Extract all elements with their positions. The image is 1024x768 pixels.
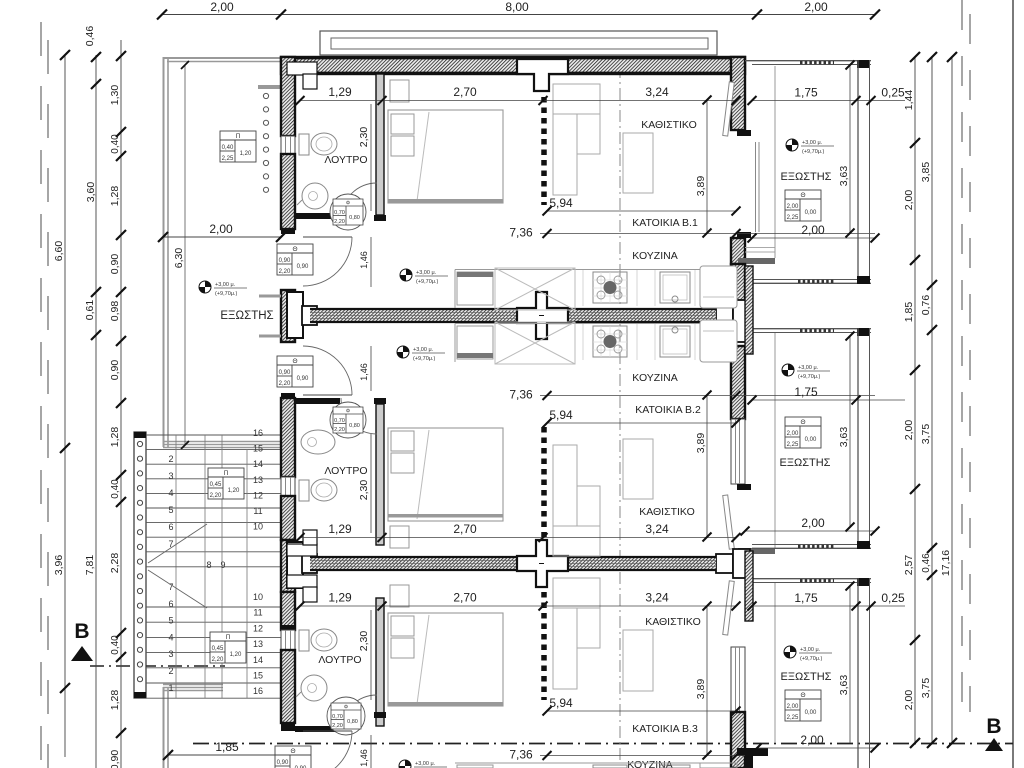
- svg-text:2,70: 2,70: [453, 591, 477, 605]
- svg-text:+3,00 μ.: +3,00 μ.: [416, 270, 437, 276]
- svg-text:5,94: 5,94: [549, 408, 573, 422]
- svg-text:1,30: 1,30: [109, 85, 121, 106]
- svg-text:0,70: 0,70: [332, 714, 343, 720]
- svg-text:3: 3: [168, 649, 173, 659]
- svg-text:B: B: [986, 715, 1001, 738]
- svg-text:3: 3: [168, 471, 173, 481]
- svg-text:1,85: 1,85: [215, 740, 239, 754]
- svg-text:ΛΟΥΤΡΟ: ΛΟΥΤΡΟ: [324, 465, 367, 477]
- svg-text:1,44: 1,44: [903, 90, 915, 111]
- svg-text:3,75: 3,75: [920, 678, 932, 699]
- svg-text:ΕΞΩΣΤΗΣ: ΕΞΩΣΤΗΣ: [780, 457, 831, 469]
- svg-text:2,00: 2,00: [210, 0, 234, 14]
- svg-text:1,46: 1,46: [359, 363, 369, 381]
- svg-text:0,90: 0,90: [279, 370, 291, 376]
- svg-text:9: 9: [220, 560, 225, 570]
- svg-text:17,16: 17,16: [940, 550, 952, 576]
- svg-text:2: 2: [168, 454, 173, 464]
- svg-text:1,85: 1,85: [903, 302, 915, 323]
- svg-text:1: 1: [168, 683, 173, 693]
- svg-text:0,90: 0,90: [297, 264, 309, 270]
- svg-text:ΛΟΥΤΡΟ: ΛΟΥΤΡΟ: [324, 154, 367, 166]
- svg-text:ΚΟΥΖΙΝΑ: ΚΟΥΖΙΝΑ: [632, 250, 677, 262]
- svg-text:1,20: 1,20: [230, 652, 242, 658]
- svg-text:ΕΞΩΣΤΗΣ: ΕΞΩΣΤΗΣ: [781, 671, 832, 683]
- svg-text:3,60: 3,60: [85, 182, 97, 203]
- svg-text:Θ: Θ: [292, 246, 297, 253]
- svg-text:16: 16: [253, 428, 263, 438]
- svg-text:0,80: 0,80: [349, 215, 360, 221]
- svg-text:2,30: 2,30: [358, 127, 370, 148]
- svg-text:4: 4: [168, 488, 173, 498]
- svg-text:2,57: 2,57: [903, 555, 915, 576]
- svg-text:+3,00 μ.: +3,00 μ.: [415, 761, 436, 767]
- svg-text:3,85: 3,85: [920, 162, 932, 183]
- svg-text:0,25: 0,25: [881, 591, 905, 605]
- svg-text:0,80: 0,80: [349, 423, 360, 429]
- svg-text:0,90: 0,90: [297, 376, 309, 382]
- svg-text:ΚΑΘΙΣΤΙΚΟ: ΚΑΘΙΣΤΙΚΟ: [641, 119, 697, 131]
- svg-text:8: 8: [206, 560, 211, 570]
- svg-text:5: 5: [168, 505, 173, 515]
- svg-text:2,20: 2,20: [212, 657, 224, 663]
- svg-text:ΚΑΤΟΙΚΙΑ Β.3: ΚΑΤΟΙΚΙΑ Β.3: [632, 723, 698, 735]
- svg-text:ΚΑΤΟΙΚΙΑ Β.1: ΚΑΤΟΙΚΙΑ Β.1: [632, 217, 698, 229]
- svg-text:ΕΞΩΣΤΗΣ: ΕΞΩΣΤΗΣ: [220, 310, 273, 322]
- svg-text:2,30: 2,30: [358, 480, 370, 501]
- svg-text:Θ: Θ: [800, 192, 805, 199]
- svg-text:2,70: 2,70: [453, 522, 477, 536]
- svg-text:0,90: 0,90: [279, 258, 291, 264]
- svg-text:2,00: 2,00: [801, 516, 825, 530]
- svg-text:5: 5: [168, 616, 173, 626]
- svg-text:1,29: 1,29: [328, 522, 352, 536]
- svg-text:0,00: 0,00: [805, 710, 817, 716]
- svg-text:Θ: Θ: [800, 692, 805, 699]
- svg-text:2,00: 2,00: [804, 0, 828, 14]
- svg-text:2,70: 2,70: [453, 85, 477, 99]
- svg-text:2,00: 2,00: [787, 431, 799, 437]
- svg-text:2,00: 2,00: [787, 704, 799, 710]
- svg-text:3,24: 3,24: [645, 85, 669, 99]
- svg-text:4: 4: [168, 632, 173, 642]
- svg-text:3,24: 3,24: [645, 522, 669, 536]
- svg-text:Π: Π: [226, 634, 231, 641]
- svg-text:ΚΑΘΙΣΤΙΚΟ: ΚΑΘΙΣΤΙΚΟ: [645, 616, 701, 628]
- svg-text:0,70: 0,70: [334, 210, 345, 216]
- svg-text:3,63: 3,63: [838, 427, 850, 448]
- svg-text:ΚΟΥΖΙΝΑ: ΚΟΥΖΙΝΑ: [632, 372, 677, 384]
- svg-text:(+9,70μ.): (+9,70μ.): [798, 374, 820, 380]
- svg-text:0,45: 0,45: [210, 482, 222, 488]
- svg-text:2,20: 2,20: [334, 219, 345, 225]
- svg-text:0,00: 0,00: [805, 210, 817, 216]
- svg-text:2,30: 2,30: [358, 631, 370, 652]
- svg-text:5,94: 5,94: [549, 196, 573, 210]
- svg-text:0,25: 0,25: [881, 86, 905, 100]
- svg-text:3,63: 3,63: [838, 675, 850, 696]
- svg-text:7,81: 7,81: [84, 555, 96, 576]
- svg-text:0,00: 0,00: [805, 437, 817, 443]
- svg-text:2,00: 2,00: [903, 190, 915, 211]
- svg-text:13: 13: [253, 475, 263, 485]
- svg-text:12: 12: [253, 623, 263, 633]
- svg-text:2,25: 2,25: [787, 215, 799, 221]
- svg-text:10: 10: [253, 522, 263, 532]
- svg-text:ΕΞΩΣΤΗΣ: ΕΞΩΣΤΗΣ: [781, 171, 832, 183]
- svg-text:8,00: 8,00: [505, 0, 529, 14]
- svg-text:Φ: Φ: [346, 409, 350, 415]
- svg-text:13: 13: [253, 639, 263, 649]
- svg-text:1,28: 1,28: [109, 186, 121, 207]
- svg-text:1,75: 1,75: [794, 86, 818, 100]
- svg-text:1,46: 1,46: [359, 251, 369, 269]
- svg-text:ΚΑΘΙΣΤΙΚΟ: ΚΑΘΙΣΤΙΚΟ: [639, 506, 695, 518]
- svg-text:0,98: 0,98: [109, 301, 121, 322]
- svg-text:3,89: 3,89: [695, 433, 707, 454]
- svg-text:+3,00 μ.: +3,00 μ.: [413, 347, 434, 353]
- svg-text:B: B: [74, 620, 89, 643]
- svg-text:2,20: 2,20: [332, 723, 343, 729]
- svg-text:0,45: 0,45: [212, 646, 224, 652]
- svg-text:3,24: 3,24: [645, 591, 669, 605]
- svg-text:2,00: 2,00: [801, 223, 825, 237]
- svg-text:3,75: 3,75: [920, 424, 932, 445]
- svg-text:7,36: 7,36: [509, 226, 533, 240]
- svg-text:+3,00 μ.: +3,00 μ.: [800, 647, 821, 653]
- svg-text:(+9,70μ.): (+9,70μ.): [802, 149, 824, 155]
- svg-text:0,76: 0,76: [920, 295, 932, 316]
- svg-text:1,20: 1,20: [228, 488, 240, 494]
- svg-text:0,61: 0,61: [84, 300, 96, 321]
- svg-text:3,63: 3,63: [838, 166, 850, 187]
- svg-text:Θ: Θ: [290, 748, 295, 755]
- svg-text:0,46: 0,46: [84, 26, 96, 47]
- svg-text:1,28: 1,28: [109, 427, 121, 448]
- svg-text:10: 10: [253, 592, 263, 602]
- svg-text:16: 16: [253, 686, 263, 696]
- svg-text:6: 6: [168, 522, 173, 532]
- svg-text:2,00: 2,00: [209, 222, 233, 236]
- svg-text:0,70: 0,70: [334, 418, 345, 424]
- svg-text:11: 11: [253, 506, 262, 516]
- svg-text:12: 12: [253, 490, 263, 500]
- svg-text:2,25: 2,25: [222, 156, 234, 162]
- svg-text:2,25: 2,25: [787, 442, 799, 448]
- svg-text:(+9,70μ.): (+9,70μ.): [215, 291, 237, 297]
- svg-text:0,40: 0,40: [110, 479, 121, 499]
- svg-text:15: 15: [253, 444, 263, 454]
- svg-text:2,00: 2,00: [787, 204, 799, 210]
- svg-text:6,60: 6,60: [53, 241, 65, 262]
- svg-text:Φ: Φ: [346, 201, 350, 207]
- svg-text:6,30: 6,30: [173, 248, 185, 269]
- svg-text:1,28: 1,28: [109, 690, 121, 711]
- svg-text:1,75: 1,75: [794, 591, 818, 605]
- svg-text:2,20: 2,20: [334, 427, 345, 433]
- svg-text:0,46: 0,46: [921, 553, 932, 573]
- svg-text:14: 14: [253, 655, 263, 665]
- svg-text:Φ: Φ: [344, 705, 348, 711]
- svg-text:3,89: 3,89: [695, 679, 707, 700]
- svg-text:2,00: 2,00: [800, 733, 824, 747]
- svg-text:(+9,70μ.): (+9,70μ.): [413, 356, 435, 362]
- svg-text:5,94: 5,94: [549, 696, 573, 710]
- svg-text:0,90: 0,90: [109, 360, 121, 381]
- svg-text:2,00: 2,00: [903, 690, 915, 711]
- svg-text:1,20: 1,20: [240, 151, 252, 157]
- svg-text:3,89: 3,89: [695, 176, 707, 197]
- svg-text:2: 2: [168, 666, 173, 676]
- svg-text:Π: Π: [224, 470, 229, 477]
- svg-text:0,90: 0,90: [109, 750, 121, 768]
- svg-text:(+9,70μ.): (+9,70μ.): [800, 656, 822, 662]
- svg-text:2,25: 2,25: [787, 715, 799, 721]
- svg-text:+3,00 μ.: +3,00 μ.: [802, 140, 823, 146]
- svg-text:0,40: 0,40: [110, 134, 121, 154]
- svg-text:+3,00 μ.: +3,00 μ.: [798, 365, 819, 371]
- svg-text:ΛΟΥΤΡΟ: ΛΟΥΤΡΟ: [318, 654, 361, 666]
- svg-text:Π: Π: [236, 133, 241, 140]
- svg-text:+3,00 μ.: +3,00 μ.: [215, 282, 236, 288]
- svg-text:Θ: Θ: [292, 358, 297, 365]
- svg-text:15: 15: [253, 671, 263, 681]
- svg-text:2,28: 2,28: [109, 553, 121, 574]
- svg-text:2,20: 2,20: [279, 269, 291, 275]
- svg-text:0,90: 0,90: [277, 760, 289, 766]
- svg-text:2,20: 2,20: [279, 381, 291, 387]
- svg-text:6: 6: [168, 599, 173, 609]
- svg-text:2,00: 2,00: [903, 420, 915, 441]
- svg-text:0,40: 0,40: [110, 635, 121, 655]
- svg-text:1,75: 1,75: [794, 385, 818, 399]
- svg-text:7,36: 7,36: [509, 388, 533, 402]
- svg-text:1,29: 1,29: [328, 85, 352, 99]
- svg-text:1,29: 1,29: [328, 591, 352, 605]
- svg-text:3,96: 3,96: [53, 555, 65, 576]
- svg-text:14: 14: [253, 459, 263, 469]
- svg-text:(+9,70μ.): (+9,70μ.): [416, 279, 438, 285]
- svg-text:0,80: 0,80: [347, 719, 358, 725]
- svg-text:7,36: 7,36: [509, 748, 533, 762]
- svg-text:ΚΑΤΟΙΚΙΑ Β.2: ΚΑΤΟΙΚΙΑ Β.2: [635, 404, 701, 416]
- svg-text:0,90: 0,90: [109, 254, 121, 275]
- svg-text:0,40: 0,40: [222, 145, 234, 151]
- svg-text:1,46: 1,46: [359, 749, 369, 767]
- svg-text:2,20: 2,20: [210, 493, 222, 499]
- svg-text:Θ: Θ: [800, 419, 805, 426]
- svg-text:11: 11: [253, 608, 262, 618]
